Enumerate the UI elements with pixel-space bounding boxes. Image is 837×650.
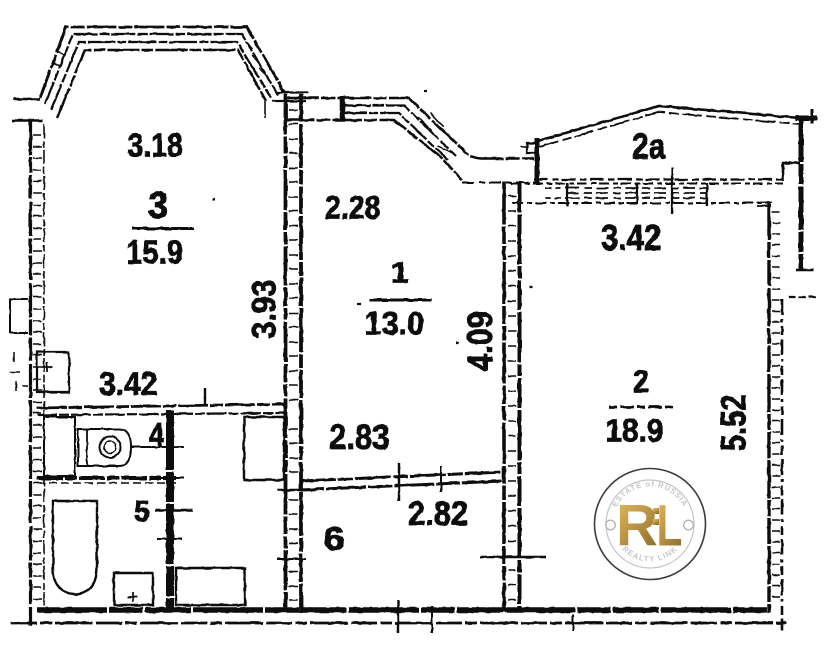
svg-text:R: R bbox=[616, 494, 658, 559]
svg-text:2.82: 2.82 bbox=[408, 495, 468, 533]
svg-text:2.83: 2.83 bbox=[329, 418, 390, 457]
svg-text:4.09: 4.09 bbox=[460, 311, 499, 371]
svg-text:2a: 2a bbox=[632, 127, 666, 167]
svg-text:4: 4 bbox=[149, 418, 165, 454]
svg-text:18.9: 18.9 bbox=[606, 413, 664, 449]
svg-text:15.9: 15.9 bbox=[126, 234, 183, 271]
svg-text:13.0: 13.0 bbox=[365, 306, 425, 342]
svg-text:3.18: 3.18 bbox=[128, 126, 183, 164]
svg-text:3.42: 3.42 bbox=[99, 365, 157, 403]
svg-text:2.28: 2.28 bbox=[325, 191, 380, 226]
svg-text:3.93: 3.93 bbox=[245, 280, 283, 339]
svg-text:6: 6 bbox=[324, 520, 345, 557]
svg-text:1: 1 bbox=[391, 255, 409, 289]
svg-text:L: L bbox=[657, 493, 683, 558]
svg-text:3.42: 3.42 bbox=[601, 219, 661, 259]
svg-text:3: 3 bbox=[148, 183, 168, 226]
svg-text:2: 2 bbox=[633, 364, 649, 400]
svg-text:5: 5 bbox=[134, 496, 150, 528]
svg-text:5.52: 5.52 bbox=[714, 394, 753, 451]
